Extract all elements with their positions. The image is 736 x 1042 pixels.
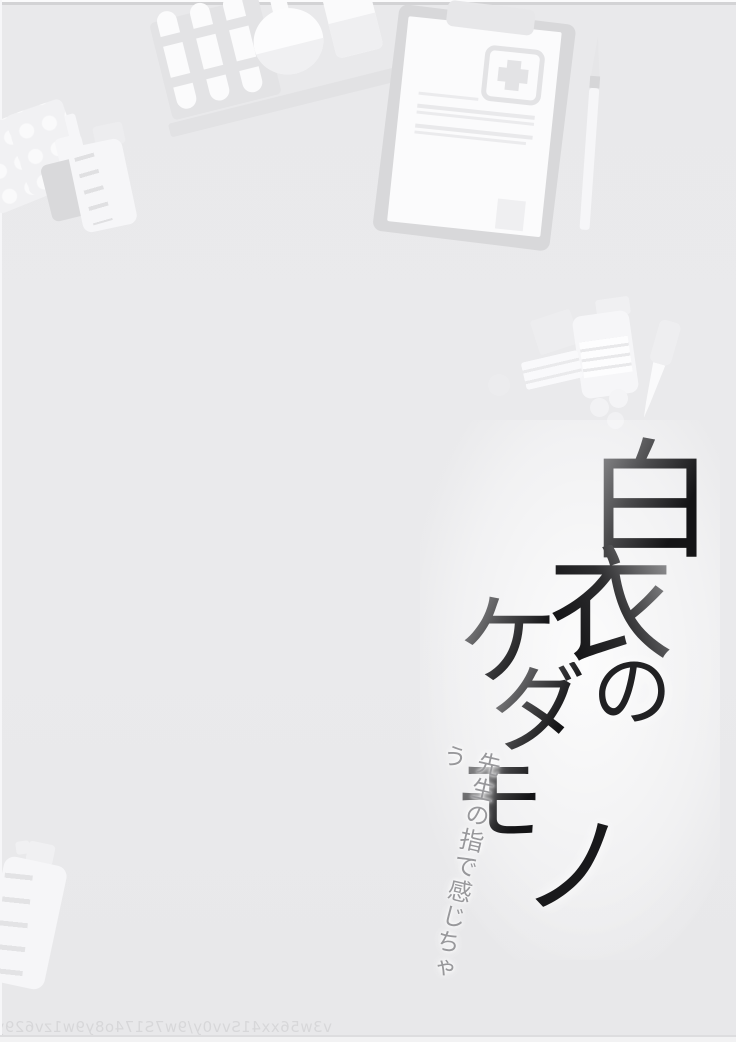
dropper-vial-group bbox=[632, 318, 686, 425]
dropper-cap bbox=[649, 318, 682, 366]
paper-text-line bbox=[418, 92, 478, 101]
medical-cross-icon bbox=[497, 67, 528, 84]
pill-icon bbox=[609, 389, 628, 408]
label-card-icon bbox=[521, 350, 584, 390]
title-char: の bbox=[592, 652, 672, 732]
watermark-text: v3w56xx41Svv0y/9w7S174o8y9w1zv629y bbox=[2, 1018, 332, 1038]
pill-icon bbox=[590, 398, 609, 417]
flask-liquid bbox=[256, 38, 331, 82]
graduated-medicine-bottle-icon bbox=[67, 137, 139, 234]
graduated-medicine-bottle-icon bbox=[0, 855, 69, 992]
graduation-marks bbox=[0, 873, 33, 977]
pill-bottle-label bbox=[579, 336, 633, 378]
dropper-vial-icon bbox=[635, 361, 668, 420]
clipboard-paper bbox=[387, 16, 562, 237]
paper-corner-square bbox=[495, 199, 526, 232]
title-char: ダ bbox=[490, 662, 586, 758]
medicine-bottle-group bbox=[0, 834, 90, 1014]
pill-bottle-icon bbox=[572, 309, 640, 399]
medical-cross-box bbox=[480, 44, 546, 106]
pen-band bbox=[589, 76, 600, 89]
pen-tip-icon bbox=[590, 36, 603, 77]
graduation-marks bbox=[74, 153, 113, 226]
beaker-icon bbox=[319, 0, 383, 59]
manga-title-page: 白 衣 の ケ ダ モ ノ 先生の指で感じちゃう v3w56xx41Svv0y/… bbox=[0, 0, 736, 1042]
title-char: ノ bbox=[520, 812, 630, 922]
beaker-liquid bbox=[329, 13, 384, 59]
pill-icon bbox=[488, 374, 510, 396]
